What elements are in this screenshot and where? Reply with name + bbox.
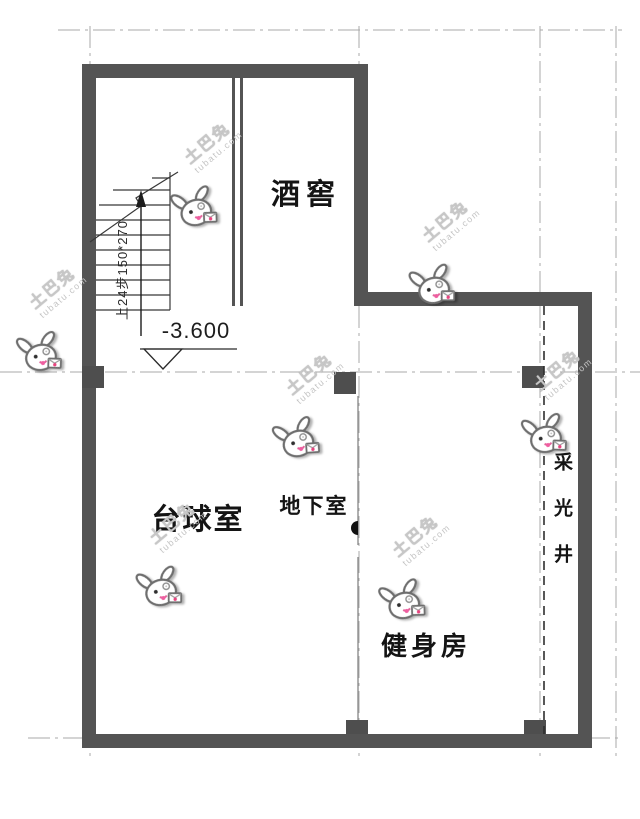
floor-plan: 上24步150*270 -3.600 酒窖 台球室 地下室 健身房 采光井 — [0, 0, 640, 819]
annotation-layer — [0, 0, 640, 819]
room-label-light-well: 采光井 — [548, 452, 575, 632]
room-label-basement: 地下室 — [268, 490, 360, 520]
elevation-marker-icon — [140, 349, 237, 369]
stair-note: 上24步150*270 — [62, 200, 182, 320]
elevation-value: -3.600 — [148, 318, 244, 344]
room-label-billiards: 台球室 — [136, 496, 260, 538]
room-label-gym: 健身房 — [372, 626, 480, 663]
stair-note-text: 上24步150*270 — [112, 210, 131, 330]
room-label-wine-cellar: 酒窖 — [258, 171, 354, 213]
room-divider-line — [351, 396, 358, 720]
door-hinge-dot — [351, 521, 358, 535]
